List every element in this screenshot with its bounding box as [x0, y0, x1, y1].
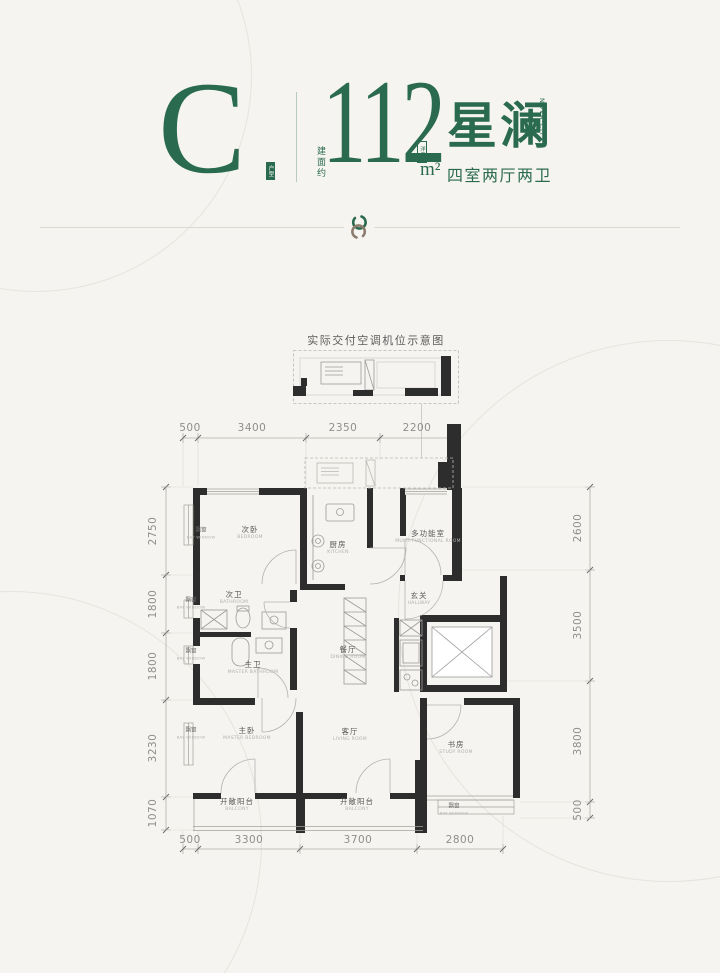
- brand-knot-icon: [344, 212, 374, 242]
- room-label-kitchen: 厨房KITCHEN: [327, 540, 349, 556]
- room-label-bathroom2: 次卫BATHROOM: [220, 590, 248, 606]
- dim-right-1: 3500: [572, 611, 584, 640]
- room-label-balcony2: 开敞阳台BALCONY: [340, 797, 374, 813]
- dim-right-0: 2600: [572, 514, 584, 543]
- room-label-living: 客厅LIVING ROOM: [333, 727, 367, 743]
- extension-lines: [166, 443, 590, 844]
- room-label-master-bathroom: 主卫MASTER BATHROOM: [228, 660, 279, 676]
- unit-type-tag: 户型: [266, 162, 275, 180]
- dim-bottom-0: 500: [179, 834, 201, 846]
- dim-top-0: 500: [179, 422, 201, 434]
- dim-left-1: 1800: [147, 590, 159, 619]
- dim-right-3: 500: [572, 799, 584, 821]
- room-label-hallway: 玄关HALLWAY: [408, 591, 431, 607]
- dimension-lines: [161, 433, 595, 854]
- area-unit: m²: [420, 159, 440, 181]
- ac-diagram-drawing: [293, 350, 459, 404]
- room-label-dining: 餐厅DINING ROOM: [330, 645, 365, 661]
- unit-type-letter: C: [158, 62, 246, 194]
- room-label-baywindow2: 飘窗BAY WINDOW: [177, 598, 206, 611]
- project-name-en: NOVA·CITY: [538, 98, 546, 142]
- header-divider-line: [296, 92, 297, 182]
- dim-top-3: 2200: [403, 422, 432, 434]
- unit-type-tag-label: 户型: [267, 165, 275, 177]
- dim-left-0: 2750: [147, 517, 159, 546]
- dim-left-2: 1800: [147, 652, 159, 681]
- dim-bottom-3: 2800: [446, 834, 475, 846]
- room-label-multifunction: 多功能室MULTI-FUNCTIONAL ROOM: [395, 529, 461, 545]
- room-label-baywindow5: 飘窗BAY WINDOW: [440, 804, 469, 817]
- room-label-baywindow4: 飘窗BAY WINDOW: [177, 728, 206, 741]
- dim-top-2: 2350: [329, 422, 358, 434]
- dim-bottom-1: 3300: [235, 834, 264, 846]
- floor-plan-page: C 户型 建面约 112 洋房 m² 星澜 NOVA·CITY 四室两厅两卫 实…: [0, 0, 720, 973]
- area-tag-label: 洋房: [418, 146, 426, 158]
- room-label-study: 书房STUDY ROOM: [439, 740, 472, 756]
- elevator-shaft: [432, 627, 492, 677]
- dim-bottom-2: 3700: [344, 834, 373, 846]
- dim-right-2: 3800: [572, 727, 584, 756]
- room-label-baywindow1: 飘窗BAY WINDOW: [187, 528, 216, 541]
- ac-diagram-title: 实际交付空调机位示意图: [256, 332, 496, 348]
- dim-top-1: 3400: [238, 422, 267, 434]
- ac-platform: [305, 458, 453, 488]
- layout-description: 四室两厅两卫: [447, 162, 552, 186]
- room-label-baywindow3: 飘窗BAY WINDOW: [177, 649, 206, 662]
- dimension-ticks: [163, 435, 593, 852]
- dim-left-4: 1070: [147, 799, 159, 828]
- floor-plan-drawing: [140, 418, 610, 868]
- room-label-balcony1: 开敞阳台BALCONY: [220, 797, 254, 813]
- room-label-bedroom2: 次卧BEDROOM: [237, 525, 263, 541]
- room-label-master-bedroom: 主卧MASTER BEDROOM: [223, 726, 271, 742]
- dim-left-3: 3230: [147, 734, 159, 763]
